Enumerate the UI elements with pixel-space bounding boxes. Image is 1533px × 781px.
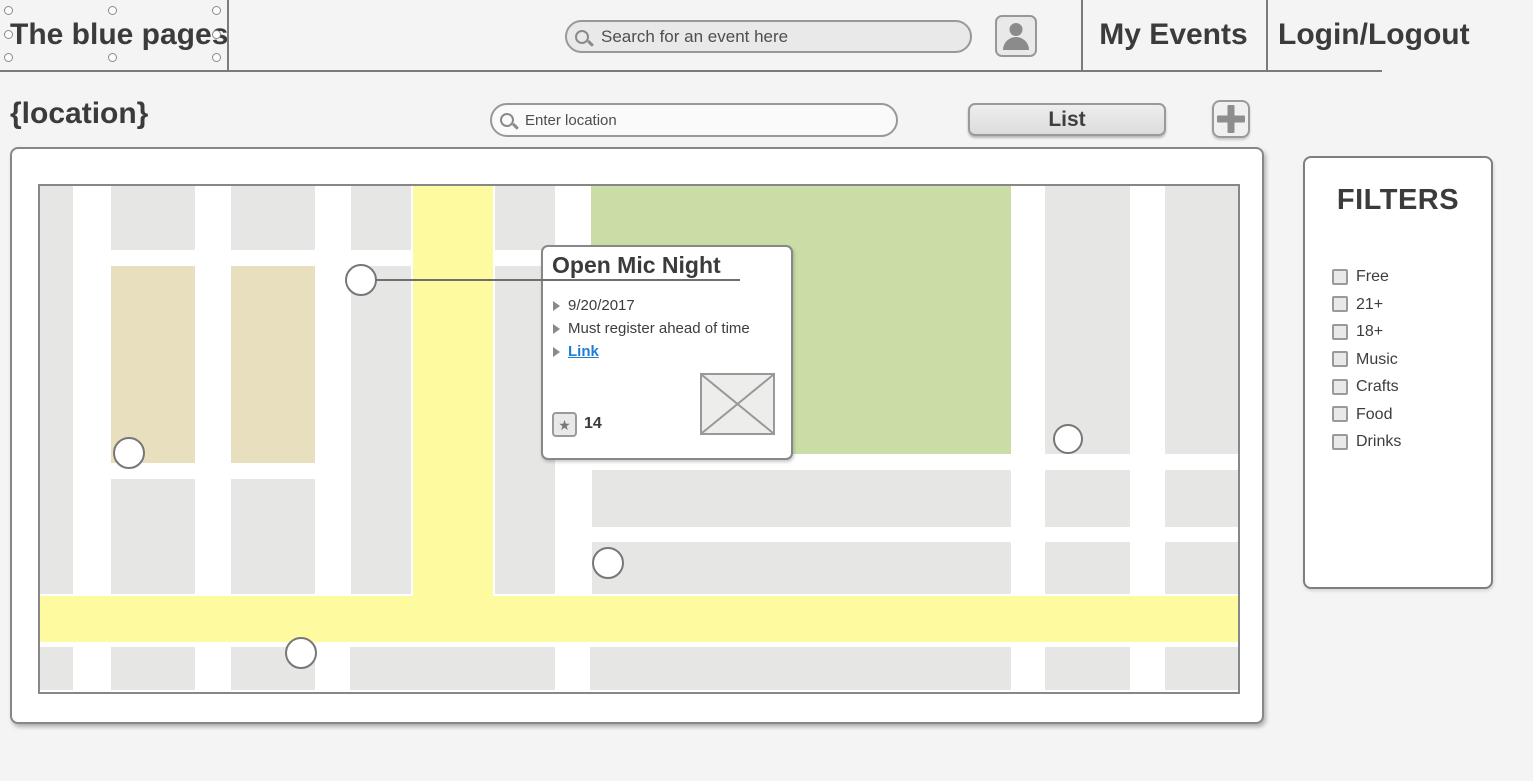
map-block xyxy=(495,186,555,250)
logo[interactable]: The blue pages xyxy=(0,0,228,70)
map-block xyxy=(1045,542,1130,594)
location-heading: {location} xyxy=(10,90,148,138)
selection-handle[interactable] xyxy=(108,53,117,62)
selection-handle[interactable] xyxy=(212,30,221,39)
filter-checkbox-food[interactable] xyxy=(1332,406,1348,422)
map-block xyxy=(231,266,315,463)
map-pin[interactable] xyxy=(1053,424,1083,454)
map-block xyxy=(351,266,411,594)
filter-label: Music xyxy=(1356,351,1398,368)
map-block xyxy=(231,479,315,594)
selection-handle[interactable] xyxy=(4,6,13,15)
filter-checkbox-music[interactable] xyxy=(1332,351,1348,367)
bullet-triangle-icon xyxy=(553,301,560,311)
filter-option-music[interactable]: Music xyxy=(1332,351,1401,368)
map-block xyxy=(1165,647,1238,690)
map-block xyxy=(1165,186,1238,454)
filter-label: Food xyxy=(1356,406,1392,423)
nav-login-logout[interactable]: Login/Logout xyxy=(1278,0,1470,70)
filter-label: 18+ xyxy=(1356,323,1383,340)
map-pin[interactable] xyxy=(113,437,145,469)
event-title: Open Mic Night xyxy=(552,252,721,279)
filter-checkbox-21[interactable] xyxy=(1332,296,1348,312)
map-road xyxy=(40,596,1238,642)
search-icon xyxy=(575,30,589,44)
header-divider-vertical xyxy=(227,0,229,70)
map-block xyxy=(231,186,315,250)
header-bottom-border xyxy=(0,70,1382,72)
bullet-triangle-icon xyxy=(553,347,560,357)
filter-label: Drinks xyxy=(1356,433,1401,450)
pin-connector-line xyxy=(375,279,740,282)
map-block xyxy=(592,542,1011,594)
favorite-button[interactable]: ★ xyxy=(552,412,577,437)
map-block xyxy=(590,647,1011,690)
filter-label: Crafts xyxy=(1356,378,1399,395)
filter-checkbox-crafts[interactable] xyxy=(1332,379,1348,395)
location-search-input[interactable] xyxy=(523,111,896,130)
filter-checkbox-drinks[interactable] xyxy=(1332,434,1348,450)
map-pin[interactable] xyxy=(345,264,377,296)
favorite-count: 14 xyxy=(584,415,602,433)
profile-button[interactable] xyxy=(995,15,1037,57)
map-block xyxy=(351,186,411,250)
map-block xyxy=(111,647,195,690)
filter-option-crafts[interactable]: Crafts xyxy=(1332,378,1401,395)
plus-icon xyxy=(1228,105,1235,133)
location-search xyxy=(490,103,898,137)
event-detail-row: 9/20/2017 xyxy=(553,297,635,314)
selection-handle[interactable] xyxy=(212,53,221,62)
add-event-button[interactable] xyxy=(1212,100,1250,138)
map-block xyxy=(350,647,555,690)
search-icon xyxy=(500,113,514,127)
map-block xyxy=(1045,470,1130,527)
image-placeholder xyxy=(700,373,775,435)
map-block xyxy=(1045,186,1130,454)
app-title: The blue pages xyxy=(10,0,228,70)
filters-panel: FILTERS Free 21+ 18+ Music Crafts Food D… xyxy=(1303,156,1493,589)
event-link[interactable]: Link xyxy=(568,343,599,360)
selection-handle[interactable] xyxy=(108,6,117,15)
map-block xyxy=(1045,647,1130,690)
filter-option-drinks[interactable]: Drinks xyxy=(1332,433,1401,450)
map-pin[interactable] xyxy=(592,547,624,579)
event-detail-row: Must register ahead of time xyxy=(553,320,750,337)
user-icon xyxy=(1003,23,1029,50)
list-view-button[interactable]: List xyxy=(968,103,1166,136)
nav-my-events[interactable]: My Events xyxy=(1081,0,1266,70)
map-block xyxy=(111,479,195,594)
filter-option-18[interactable]: 18+ xyxy=(1332,323,1401,340)
event-detail-row: Link xyxy=(553,343,599,360)
map-block xyxy=(40,186,73,594)
filter-label: 21+ xyxy=(1356,296,1383,313)
header-divider-vertical xyxy=(1266,0,1268,70)
map[interactable]: Open Mic Night 9/20/2017 Must register a… xyxy=(38,184,1240,694)
map-block xyxy=(592,470,1011,527)
event-search-input[interactable] xyxy=(599,26,970,48)
map-block xyxy=(111,186,195,250)
event-note: Must register ahead of time xyxy=(568,320,750,337)
filter-checkbox-18[interactable] xyxy=(1332,324,1348,340)
filters-title: FILTERS xyxy=(1305,184,1491,217)
map-block xyxy=(111,266,195,463)
event-search xyxy=(565,20,972,53)
selection-handle[interactable] xyxy=(212,6,221,15)
map-block xyxy=(40,647,73,690)
map-block xyxy=(1165,470,1238,527)
map-pin[interactable] xyxy=(285,637,317,669)
event-date: 9/20/2017 xyxy=(568,297,635,314)
map-block xyxy=(1165,542,1238,594)
event-popup: Open Mic Night 9/20/2017 Must register a… xyxy=(541,245,793,460)
selection-handle[interactable] xyxy=(4,53,13,62)
filter-checkbox-free[interactable] xyxy=(1332,269,1348,285)
filter-option-free[interactable]: Free xyxy=(1332,268,1401,285)
filter-option-21[interactable]: 21+ xyxy=(1332,296,1401,313)
star-icon: ★ xyxy=(558,418,571,432)
map-road xyxy=(413,186,493,642)
filter-option-food[interactable]: Food xyxy=(1332,406,1401,423)
filter-label: Free xyxy=(1356,268,1389,285)
selection-handle[interactable] xyxy=(4,30,13,39)
bullet-triangle-icon xyxy=(553,324,560,334)
map-container: Open Mic Night 9/20/2017 Must register a… xyxy=(10,147,1264,724)
header: The blue pages My Events Login/Logout xyxy=(0,0,1533,72)
